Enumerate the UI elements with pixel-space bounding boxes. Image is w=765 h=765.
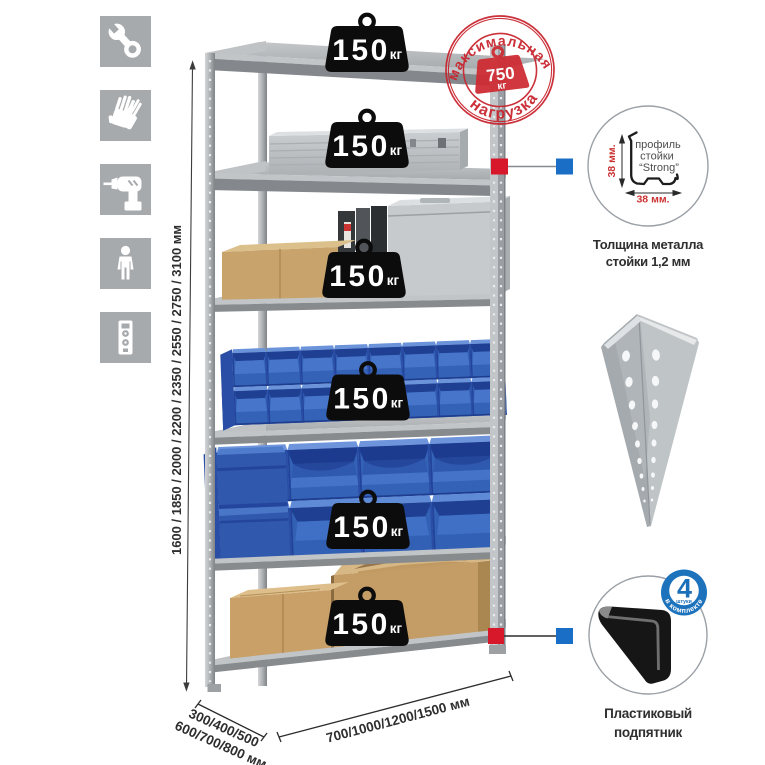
- svg-text:стойки 1,2 мм: стойки 1,2 мм: [606, 254, 691, 269]
- svg-text:Пластиковый: Пластиковый: [604, 706, 692, 721]
- svg-text:Толщина металла: Толщина металла: [593, 237, 704, 252]
- svg-text:штуки: штуки: [676, 599, 692, 605]
- svg-text:кг: кг: [497, 80, 507, 92]
- svg-text:профиль: профиль: [635, 139, 681, 151]
- svg-text:подпятник: подпятник: [614, 725, 682, 740]
- svg-text:“Strong”: “Strong”: [639, 162, 679, 174]
- svg-text:стойки: стойки: [640, 151, 674, 163]
- svg-text:38 мм.: 38 мм.: [606, 144, 618, 177]
- svg-text:1600 / 1850 / 2000 / 2200 / 23: 1600 / 1850 / 2000 / 2200 / 2350 / 2550 …: [169, 225, 184, 555]
- svg-text:38 мм.: 38 мм.: [636, 194, 669, 206]
